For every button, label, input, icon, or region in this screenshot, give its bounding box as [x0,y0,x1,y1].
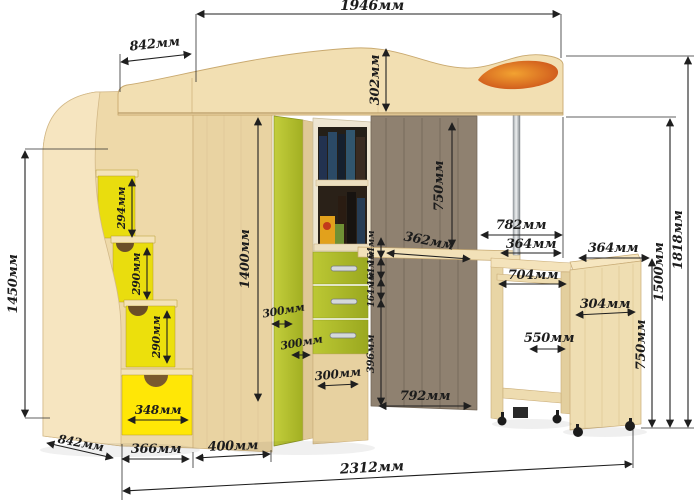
front-panel-400 [193,90,272,452]
support-pole [513,115,520,255]
dim-label-364-desk: 364мм [506,237,556,252]
dim-label-1500: 1500мм [652,242,667,301]
dim-label-400: 400мм [207,438,258,455]
wardrobe-door [274,116,303,446]
dim-label-750-desk: 750мм [432,161,447,211]
dim-label-842-top: 842мм [129,34,181,54]
wardrobe-drawers [313,252,368,444]
dim-label-290-1: 290мм [130,253,143,296]
dim-label-348: 348мм [135,403,181,417]
shelf-board [316,180,368,186]
dim-label-782: 782мм [496,218,546,233]
dim-label-290-2: 290мм [150,316,163,359]
pullout-left-panel [491,266,503,420]
furniture-dimension-diagram: 1946мм 842мм 302мм 750мм 1400мм 1450мм 2… [0,0,700,502]
pullout-bottom-shelf [503,388,561,403]
dim-label-364-cabinet: 364мм [588,241,638,256]
dim-label-302: 302мм [368,55,383,105]
wardrobe-corner-strip [303,120,313,440]
mobile-cabinet [570,254,641,430]
dim-label-366: 366мм [131,442,181,457]
dimline-842-top [121,54,191,62]
dim-label-164-3: 164мм [367,272,377,307]
dim-label-294: 294мм [115,187,128,230]
loft-bed-illustration [40,48,647,457]
dim-label-1450: 1450мм [6,254,21,313]
dim-label-1400: 1400мм [238,229,253,288]
bookshelf [313,118,371,251]
books-upper [319,130,365,180]
diagram-canvas: 1946мм 842мм 302мм 750мм 1400мм 1450мм 2… [0,0,700,502]
dim-label-396: 396мм [366,335,377,373]
caster-bracket [513,407,528,418]
dim-label-1818: 1818мм [671,210,686,269]
dim-label-304: 304мм [580,297,630,312]
cabinet-front [570,261,641,430]
dim-label-1946: 1946мм [340,0,404,14]
dim-label-704: 704мм [508,268,558,283]
dim-label-750-cabinet: 750мм [634,320,649,370]
dim-label-792: 792мм [400,389,450,404]
dim-label-550: 550мм [524,331,574,346]
dim-label-2312: 2312мм [339,458,405,477]
step-tread [111,236,155,243]
